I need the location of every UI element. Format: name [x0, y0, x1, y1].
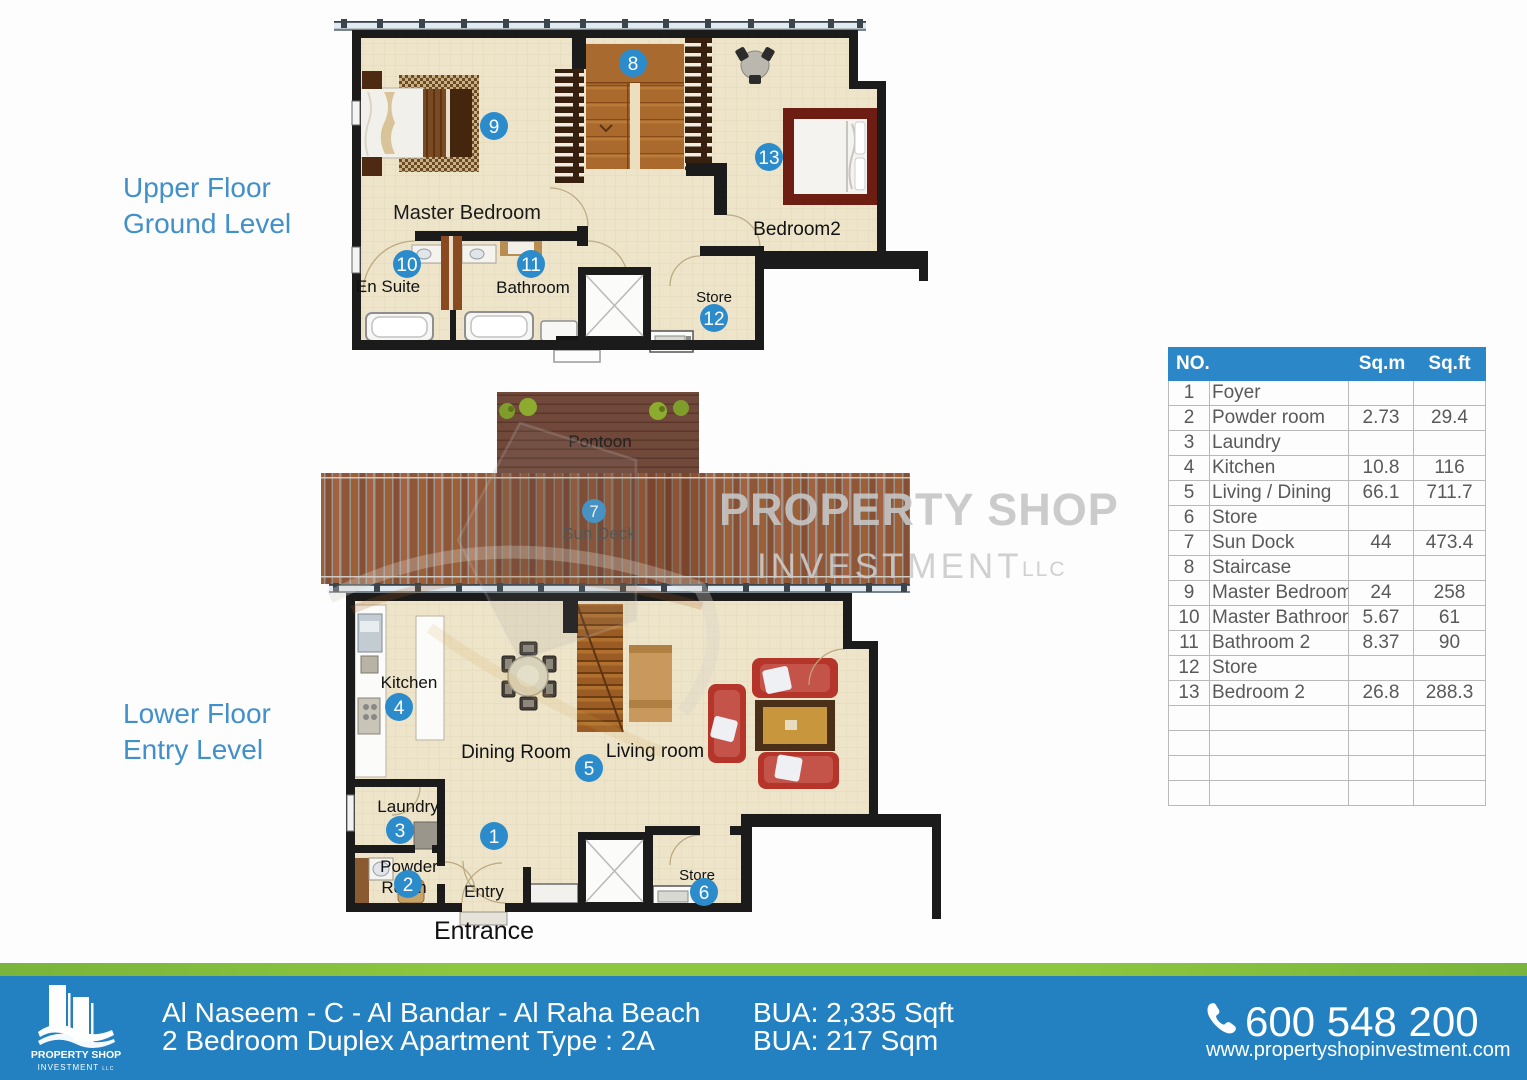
svg-text:10: 10: [396, 255, 417, 276]
svg-text:11: 11: [521, 255, 541, 276]
svg-text:INVESTMENT: INVESTMENT: [757, 547, 1023, 586]
svg-text:1: 1: [489, 827, 500, 848]
svg-text:En Suite: En Suite: [356, 277, 420, 296]
svg-text:8: 8: [628, 54, 639, 75]
svg-text:3: 3: [395, 821, 406, 842]
svg-text:Entry: Entry: [464, 882, 504, 901]
svg-text:LLC: LLC: [1022, 558, 1067, 581]
svg-text:Bedroom2: Bedroom2: [753, 219, 841, 240]
svg-text:Bathroom: Bathroom: [496, 278, 570, 297]
svg-text:INVESTMENT LLC: INVESTMENT LLC: [38, 1063, 115, 1072]
svg-text:PROPERTY SHOP: PROPERTY SHOP: [719, 484, 1119, 535]
svg-text:6: 6: [699, 883, 710, 904]
svg-text:Store: Store: [696, 289, 732, 306]
svg-text:13: 13: [758, 148, 779, 169]
svg-text:12: 12: [703, 309, 724, 330]
svg-text:9: 9: [489, 117, 500, 138]
svg-text:Master Bedroom: Master Bedroom: [393, 202, 541, 224]
svg-text:Entrance: Entrance: [434, 917, 534, 945]
svg-text:2: 2: [403, 875, 414, 896]
svg-text:PROPERTY SHOP: PROPERTY SHOP: [31, 1049, 121, 1061]
